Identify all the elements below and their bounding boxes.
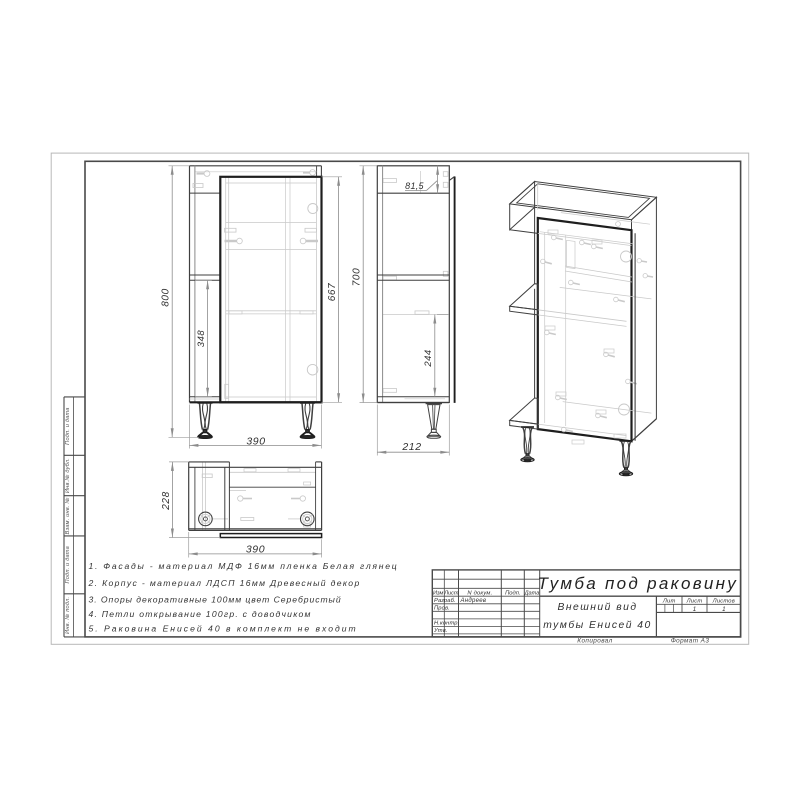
svg-text:2. Корпус - материал ЛДСП: 2. Корпус - материал ЛДСП 16мм Древесный… xyxy=(88,578,361,588)
svg-text:Копировал: Копировал xyxy=(577,637,612,644)
svg-text:4. Петли открывание 100гр.: 4. Петли открывание 100гр. с доводчиком xyxy=(89,609,312,619)
svg-text:Андреев: Андреев xyxy=(460,598,487,604)
svg-text:3. Опоры декоративные 100мм: 3. Опоры декоративные 100мм цвет Серебри… xyxy=(89,594,342,604)
svg-text:Подп.: Подп. xyxy=(505,590,520,596)
svg-text:Лист: Лист xyxy=(443,590,459,596)
svg-text:Подп. и дата: Подп. и дата xyxy=(65,546,71,583)
svg-text:5. Раковина Енисей 40 в к: 5. Раковина Енисей 40 в комплект не вход… xyxy=(89,623,358,633)
svg-text:1. Фасады - материал МДФ: 1. Фасады - материал МДФ 16мм пленка Бел… xyxy=(89,561,399,571)
svg-text:Лист: Лист xyxy=(686,599,703,605)
svg-text:N докум.: N докум. xyxy=(467,590,492,596)
svg-text:Внешний вид: Внешний вид xyxy=(557,602,637,613)
svg-text:Изм: Изм xyxy=(433,590,444,596)
svg-text:Дата: Дата xyxy=(524,590,540,596)
svg-text:Формат А3: Формат А3 xyxy=(671,637,710,644)
svg-text:Н.контр.: Н.контр. xyxy=(434,621,459,627)
svg-text:667: 667 xyxy=(327,283,338,302)
svg-text:Утв.: Утв. xyxy=(433,628,448,634)
svg-text:Пров.: Пров. xyxy=(434,606,450,612)
svg-text:348: 348 xyxy=(196,330,207,348)
svg-text:Тумба под раковину: Тумба под раковину xyxy=(537,574,738,593)
svg-text:244: 244 xyxy=(423,349,434,367)
svg-text:390: 390 xyxy=(246,544,265,556)
svg-text:1: 1 xyxy=(693,606,696,613)
svg-text:Взам. инв. №: Взам. инв. № xyxy=(65,497,71,534)
svg-text:Инв.№ дубл.: Инв.№ дубл. xyxy=(65,458,71,493)
svg-text:800: 800 xyxy=(161,288,172,307)
svg-text:700: 700 xyxy=(352,268,363,287)
svg-text:Разраб.: Разраб. xyxy=(434,598,456,604)
svg-text:228: 228 xyxy=(161,491,172,511)
svg-text:Инв. № подл.: Инв. № подл. xyxy=(65,597,71,634)
svg-text:1: 1 xyxy=(722,606,725,613)
svg-text:212: 212 xyxy=(401,441,421,453)
svg-text:390: 390 xyxy=(246,436,265,448)
svg-text:тумбы Енисей 40: тумбы Енисей 40 xyxy=(543,619,651,631)
svg-text:Лит: Лит xyxy=(662,599,676,605)
svg-text:Подп. и дата: Подп. и дата xyxy=(65,407,71,444)
svg-text:Листов: Листов xyxy=(712,599,735,605)
svg-text:81,5: 81,5 xyxy=(405,181,424,191)
